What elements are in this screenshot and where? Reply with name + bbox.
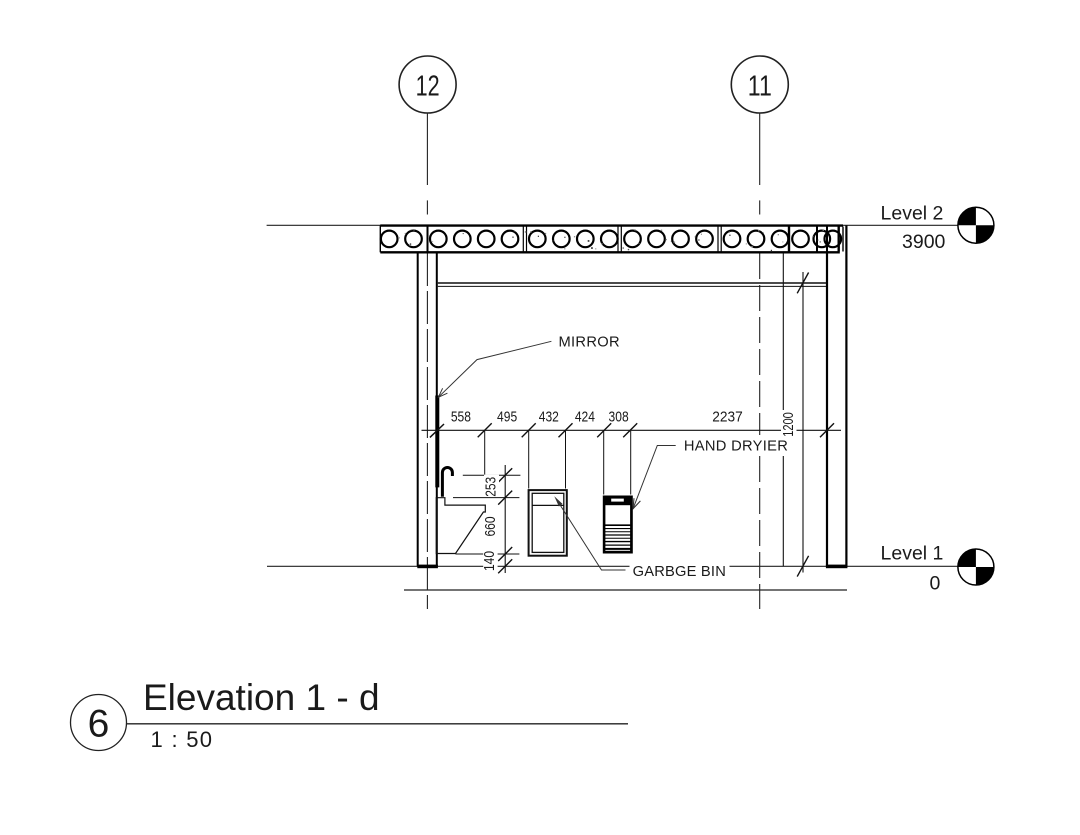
svg-text:6: 6	[88, 703, 110, 746]
svg-text:11: 11	[748, 70, 772, 102]
svg-text:HAND DRYIER: HAND DRYIER	[684, 438, 788, 454]
svg-text:253: 253	[483, 477, 499, 497]
svg-text:0: 0	[930, 572, 941, 594]
svg-text:432: 432	[539, 409, 559, 425]
svg-text:1 : 50: 1 : 50	[151, 727, 214, 752]
svg-text:1200: 1200	[781, 412, 797, 437]
svg-text:12: 12	[416, 70, 440, 102]
svg-text:Elevation 1 - d: Elevation 1 - d	[143, 677, 380, 718]
svg-text:3900: 3900	[902, 231, 946, 253]
svg-text:558: 558	[451, 409, 471, 425]
svg-text:Level 2: Level 2	[881, 202, 944, 224]
svg-text:308: 308	[609, 409, 629, 425]
svg-text:Level 1: Level 1	[881, 543, 944, 565]
svg-text:424: 424	[575, 409, 595, 425]
svg-text:140: 140	[482, 551, 498, 571]
svg-text:MIRROR: MIRROR	[559, 334, 620, 350]
svg-text:495: 495	[497, 409, 517, 425]
svg-text:2237: 2237	[712, 409, 743, 425]
svg-text:GARBGE BIN: GARBGE BIN	[633, 564, 726, 580]
svg-text:660: 660	[483, 517, 499, 537]
